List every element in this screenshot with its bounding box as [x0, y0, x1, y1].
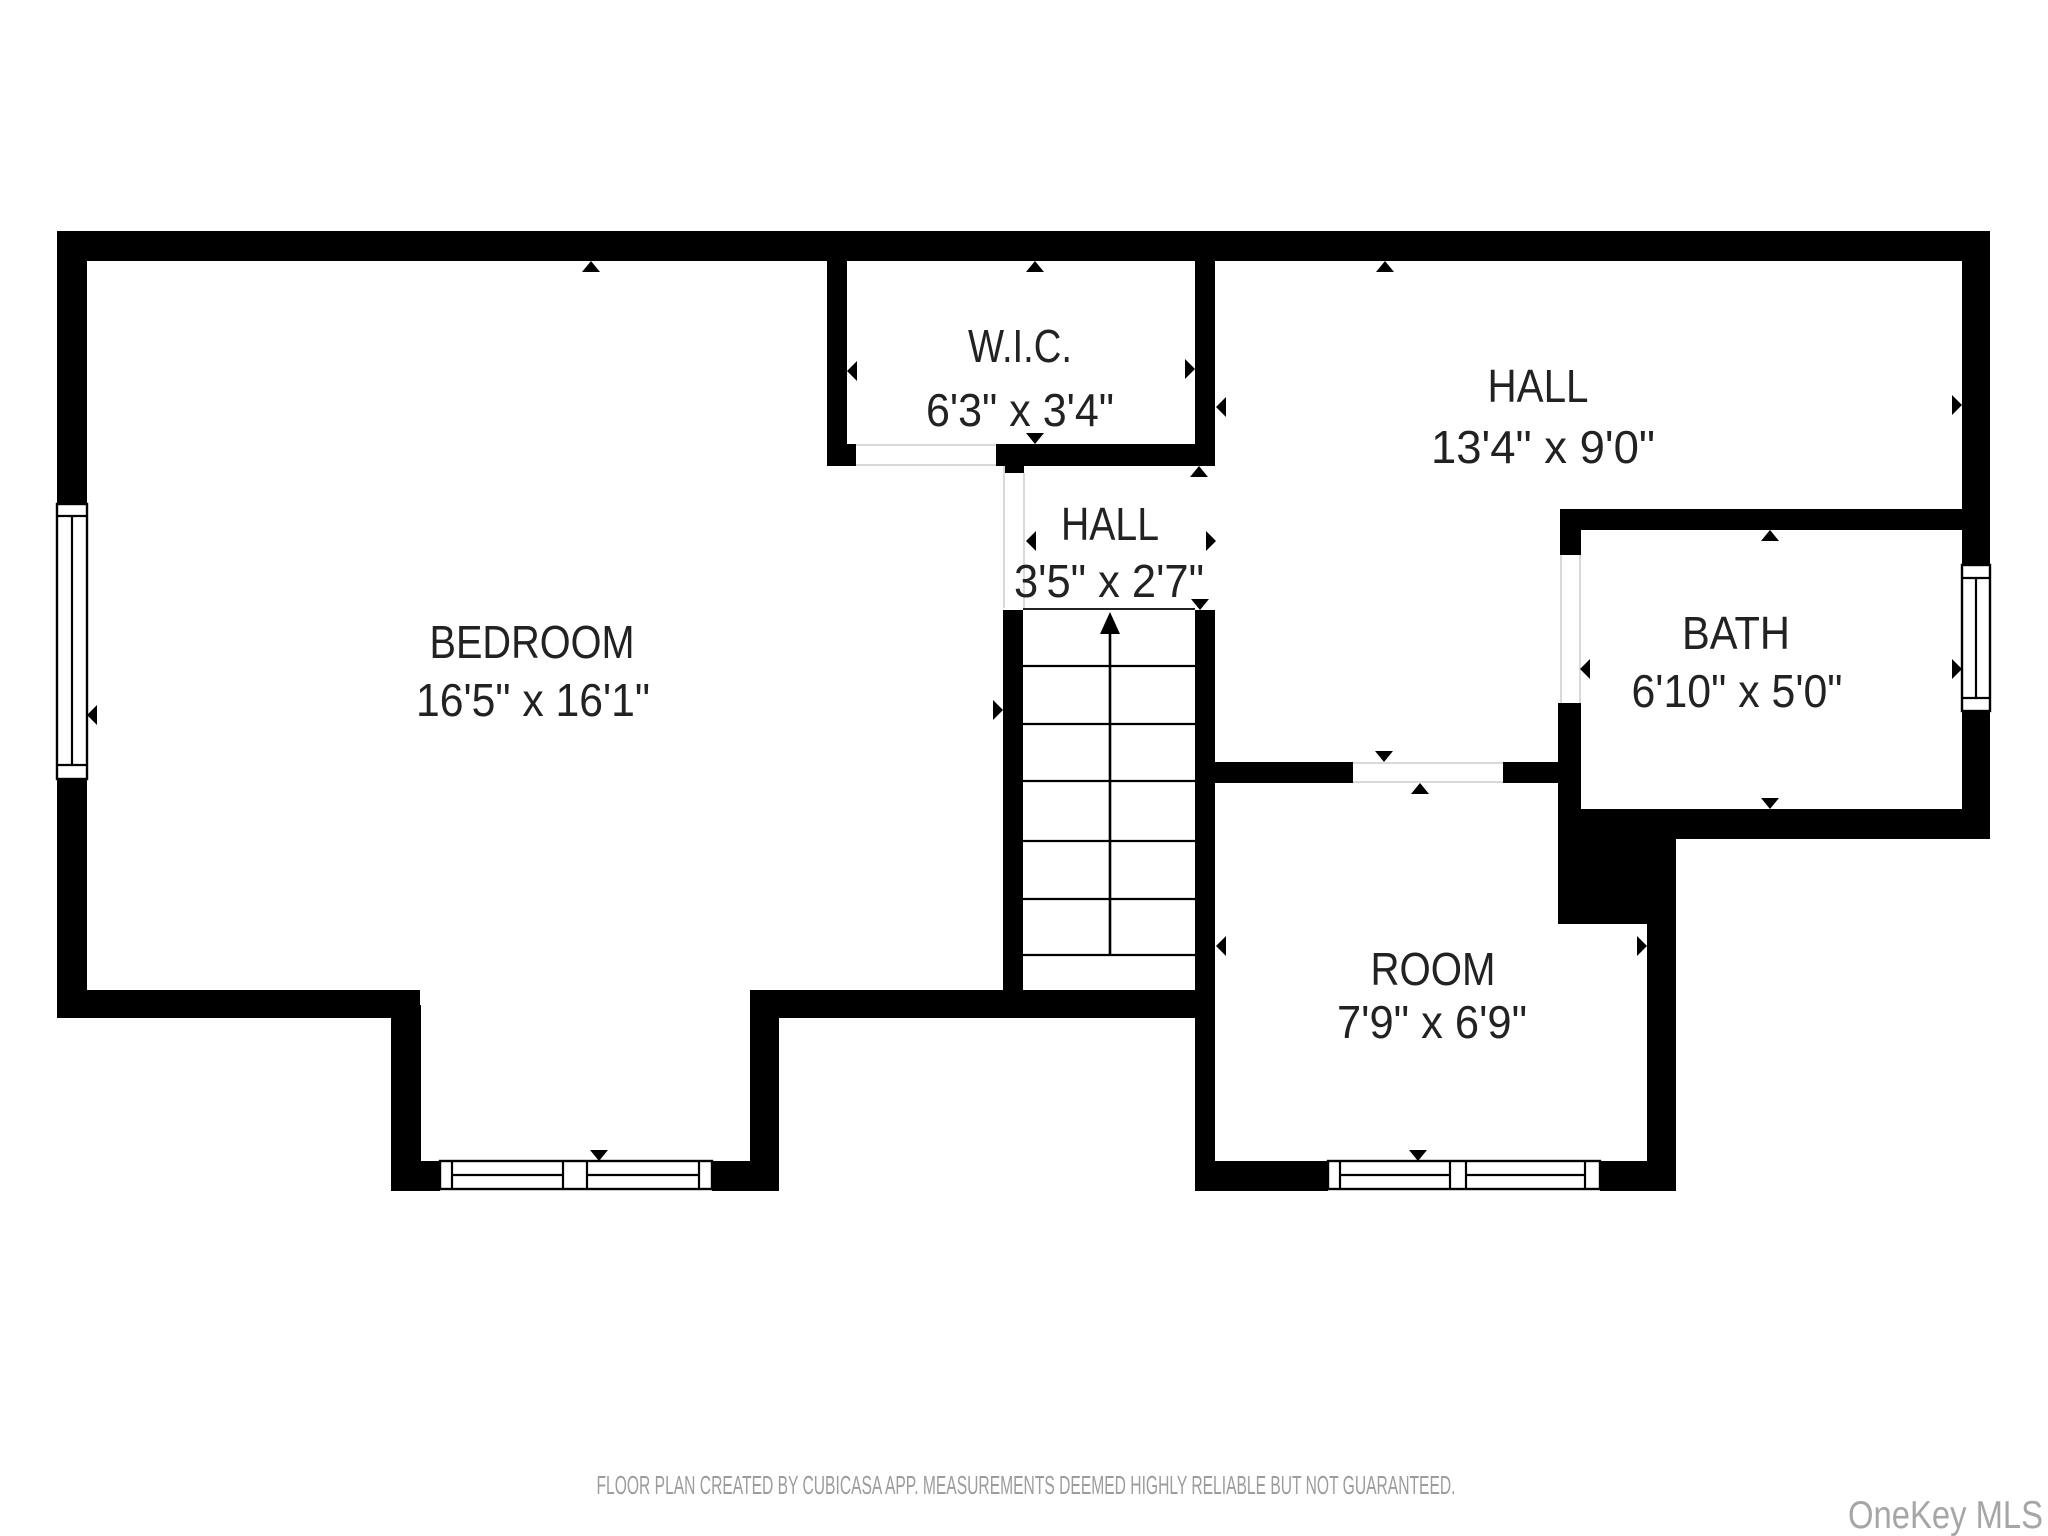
svg-text:OneKey MLS: OneKey MLS: [1848, 1494, 2043, 1536]
svg-text:BEDROOM: BEDROOM: [430, 616, 635, 668]
svg-text:16'5" x 16'1": 16'5" x 16'1": [416, 674, 650, 726]
svg-text:6'3" x 3'4": 6'3" x 3'4": [926, 384, 1114, 436]
svg-text:7'9" x 6'9": 7'9" x 6'9": [1337, 996, 1527, 1048]
svg-text:FLOOR PLAN CREATED BY CUBICASA: FLOOR PLAN CREATED BY CUBICASA APP. MEAS…: [597, 1470, 1456, 1500]
svg-text:13'4" x 9'0": 13'4" x 9'0": [1431, 421, 1655, 473]
svg-text:W.I.C.: W.I.C.: [968, 320, 1072, 372]
svg-text:HALL: HALL: [1488, 360, 1589, 412]
svg-text:HALL: HALL: [1061, 498, 1159, 550]
svg-text:BATH: BATH: [1682, 607, 1790, 659]
svg-text:3'5" x 2'7": 3'5" x 2'7": [1014, 555, 1204, 607]
svg-text:ROOM: ROOM: [1371, 943, 1496, 995]
svg-text:6'10" x 5'0": 6'10" x 5'0": [1632, 665, 1843, 717]
